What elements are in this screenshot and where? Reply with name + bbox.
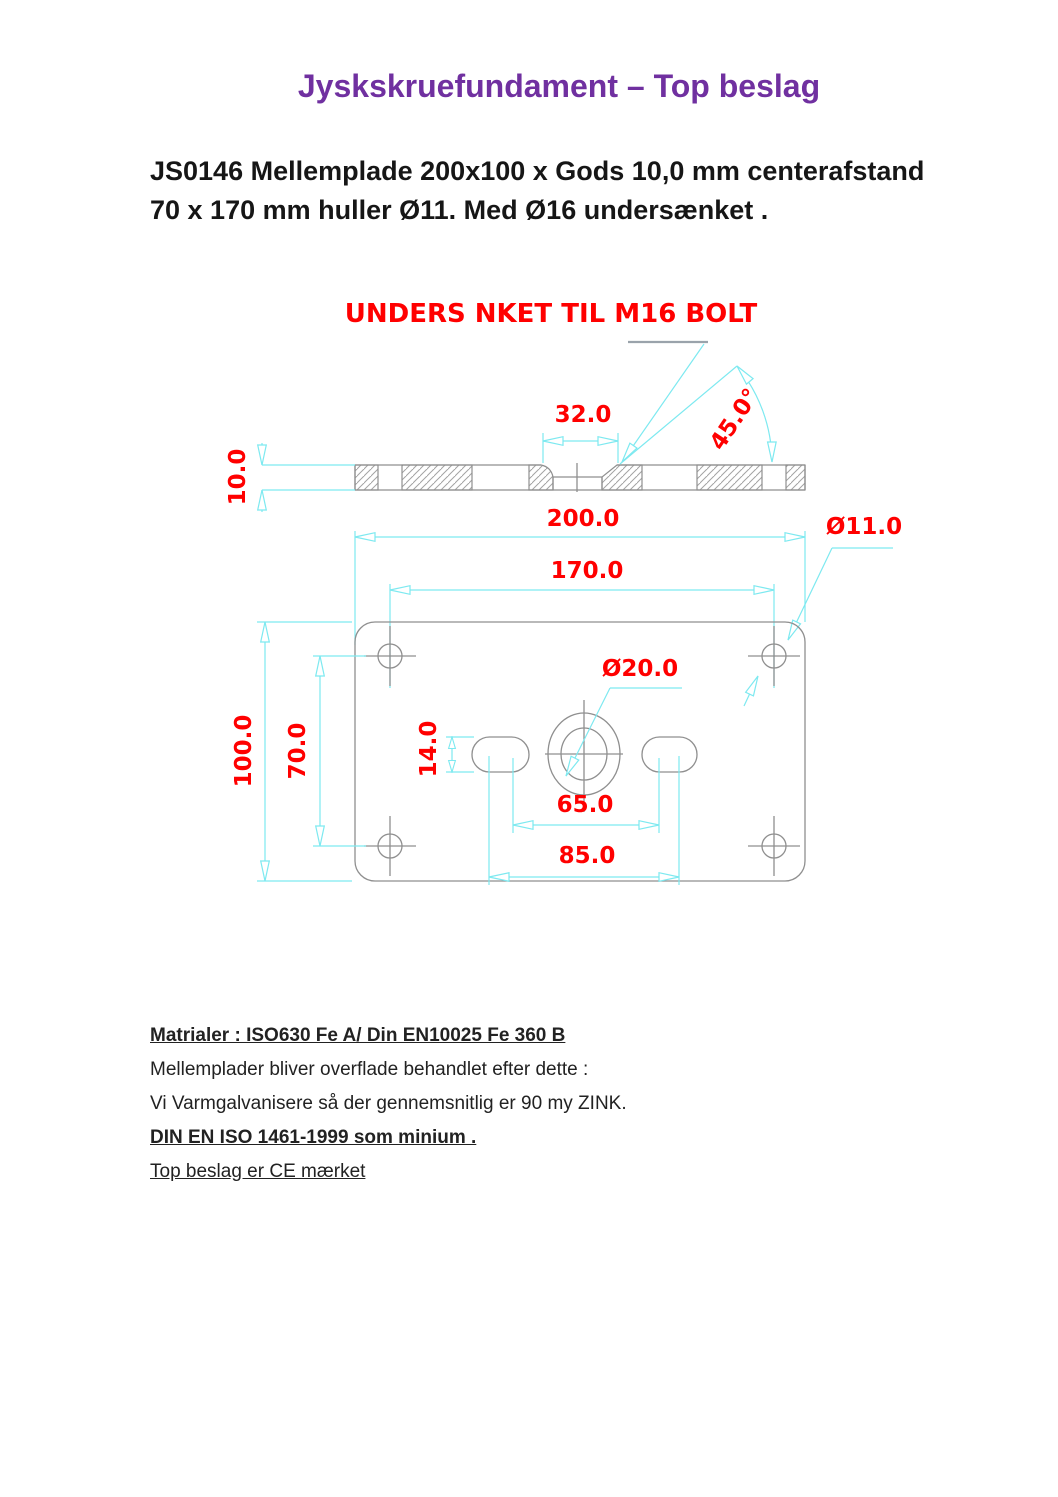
slot-left [472,737,529,772]
section-hatch-countersink-left [529,465,553,490]
dimension-hole-spacing-width: 70.0 [285,656,366,846]
section-hatch-5 [697,465,762,490]
dimension-thickness: 10.0 [225,443,355,512]
dimension-label-slot-inner-spacing: 65.0 [557,792,614,818]
dimension-label-center-hole-diameter: Ø20.0 [602,656,678,682]
galvanization-line: Vi Varmgalvanisere så der gennemsnitlig … [150,1094,910,1113]
dimension-slot-inner-spacing: 65.0 [513,758,659,833]
materials-line: Matrialer : ISO630 Fe A/ Din EN10025 Fe … [150,1026,910,1045]
document-page: Jyskskruefundament – Top beslag JS0146 M… [0,0,1058,1497]
corner-hole-bottom-left [364,816,416,876]
technical-drawing: UNDERS NKET TIL M16 BOLT [0,0,1058,980]
section-hatch-right-edge [786,465,805,490]
dimension-label-hole-spacing-width: 70.0 [285,723,311,780]
corner-hole-bottom-right [748,816,800,876]
corner-hole-top-right [748,626,800,686]
section-hatch-left-edge [355,465,378,490]
footer-notes: Matrialer : ISO630 Fe A/ Din EN10025 Fe … [150,1026,910,1196]
dimension-label-countersink-width: 32.0 [555,402,612,428]
section-view [355,463,805,492]
dimension-label-slot-width: 14.0 [416,721,442,778]
dimension-label-hole-spacing-length: 170.0 [551,558,624,584]
corner-hole-top-left [364,626,416,686]
dimension-hole-spacing-length: 170.0 [390,558,774,688]
dimension-label-hole-diameter: Ø11.0 [826,514,902,540]
ce-mark-line: Top beslag er CE mærket [150,1162,910,1181]
note-leader [622,342,708,462]
treatment-line: Mellemplader bliver overflade behandlet … [150,1060,910,1079]
drawing-note: UNDERS NKET TIL M16 BOLT [345,299,758,329]
dimension-countersink-width: 32.0 [543,402,618,463]
dimension-label-countersink-angle: 45.0° [705,384,765,455]
dimension-label-thickness: 10.0 [225,449,251,506]
slot-right [642,737,697,772]
standard-line: DIN EN ISO 1461-1999 som minium . [150,1128,910,1147]
dimension-label-plate-width: 100.0 [231,715,257,788]
dimension-slot-width: 14.0 [416,721,474,778]
dimension-label-plate-length: 200.0 [547,506,620,532]
section-hatch-2 [402,465,472,490]
dimension-countersink-angle: 45.0° [620,366,772,464]
callout-corner-hole-diameter: Ø11.0 [744,514,902,706]
dimension-label-slot-outer-spacing: 85.0 [559,843,616,869]
section-hatch-countersink-right [602,465,642,490]
